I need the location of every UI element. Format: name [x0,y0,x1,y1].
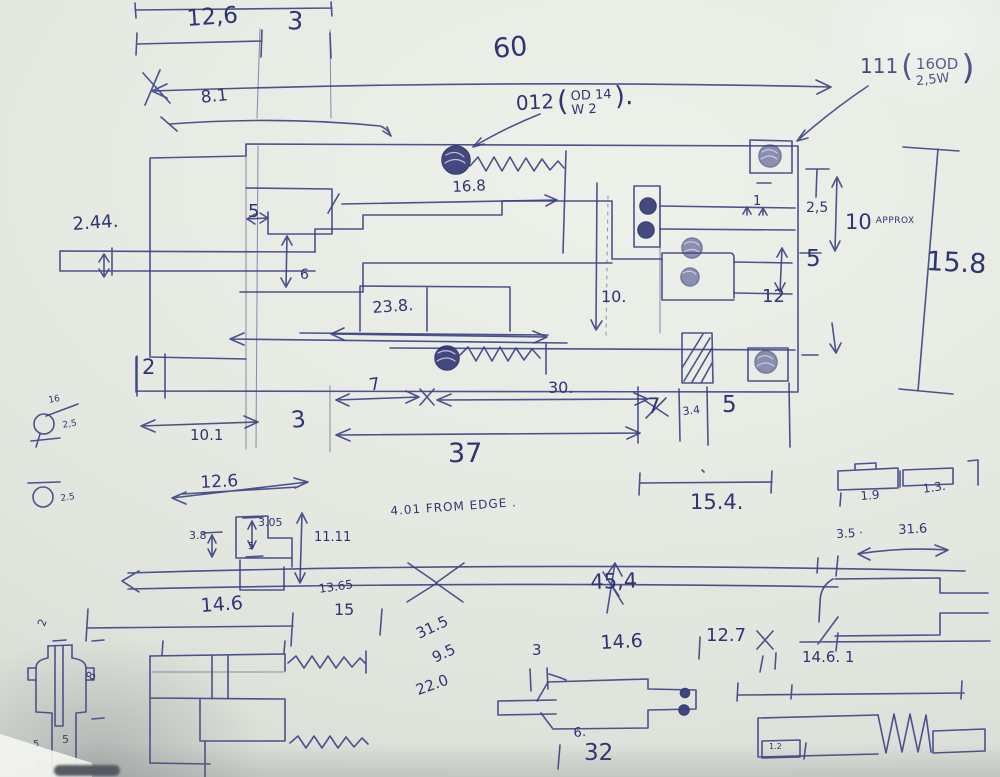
small-sketch-right [838,460,978,506]
note-111-line2: 2,5W [915,70,959,89]
dim-1: 1 [753,195,761,208]
dim-2-44: 2.44. [72,213,119,234]
long-part [86,545,990,701]
dim-32: 32 [584,742,613,765]
dim-14-6-1: 14.6. 1 [802,650,854,665]
dark-object-bottom [54,765,120,776]
dim-15-8: 15.8 [926,248,987,278]
note-111-line1: 16OD [916,56,958,73]
dim-23-8: 23.8. [372,297,414,316]
sketch-paper: 12,6 3 60 8.1 111 ( 16OD 2,5W ) 012 ( OD… [0,0,1000,777]
dim-60: 60 [492,33,529,63]
note-012-line2: W 2 [571,102,613,118]
dim-10-approx-number: 10 [845,212,872,233]
dim-31-6: 31.6 [898,522,928,536]
bolt-dim-5b: 5 [62,734,69,745]
dim-45-4: 45,4 [590,570,637,593]
dim-12-7: 12.7 [706,627,746,645]
dim-3-5: 3.5 · [836,527,863,540]
top-dimension-lines [135,2,831,136]
dim-6: 6 [300,268,309,282]
note-111: 111 ( 16OD 2,5W ) [860,56,975,87]
dim-10-approx: 10 APPROX [845,212,915,233]
dim-37: 37 [448,440,482,467]
dim-30: 30. [548,380,573,396]
dim-5-right: 5 [806,248,821,271]
note-111-open-paren: ( [901,56,913,79]
dim-3-top: 3 [287,8,304,34]
dim-2-5: 2,5 [806,201,828,215]
dim-5-cell: 5 [722,394,737,417]
dim-12: 12 [762,288,785,306]
dim-11-11: 11.11 [314,531,351,544]
dim-12-6: 12,6 [186,4,239,31]
dim-12-6-struck: 12.6 [200,473,239,492]
dim-7-cell: 7 [647,396,660,417]
dim-3-mid: 3 [532,643,542,658]
note-111-values: 16OD 2,5W [916,56,958,87]
strikethrough-12-6 [172,478,308,504]
dim-3-05: 3.05 [258,517,283,528]
note-012-open-paren: ( [556,90,568,112]
dim-3-8: 3.8 [189,530,207,541]
dim-5-small: 5 [248,542,254,552]
dim-15: 15 [334,602,354,618]
dim-1-9: 1.9 [860,489,880,502]
dim-3-4: 3.4 [682,404,701,417]
bottom-right-part [758,714,985,759]
inner-dimensions [99,183,602,345]
dim-10-down: 10. [601,289,626,305]
dim-3-gap: 3 [290,408,307,432]
note-111-close-paren: ) [961,56,974,82]
dim-15-4: 15.4. [690,492,743,513]
note-012-close-paren: ). [614,87,633,107]
note-111-number: 111 [860,56,898,76]
dim-6-bottom: 6. [573,726,586,740]
dim-2: 2 [142,357,155,378]
dim-10-1: 10.1 [190,428,223,443]
note-012-number: 012 [515,91,554,113]
dim-5-left: 5 [248,203,259,221]
dim-14-6-mid: 14.6 [600,632,643,653]
dim-16-8: 16.8 [452,178,486,195]
step-detail-figure [203,513,307,590]
dim-1-3: 1.3. [922,480,946,495]
bottom-left-assembly [150,641,368,777]
right-assembly [634,140,795,383]
note-012-values: OD 14 W 2 [570,88,612,119]
dim-14-6-left: 14.6 [200,594,244,616]
dim-8-1: 8.1 [200,87,229,107]
dim-10-approx-text: APPROX [876,217,915,226]
dim-1-2-box: 1.2 [769,743,782,751]
